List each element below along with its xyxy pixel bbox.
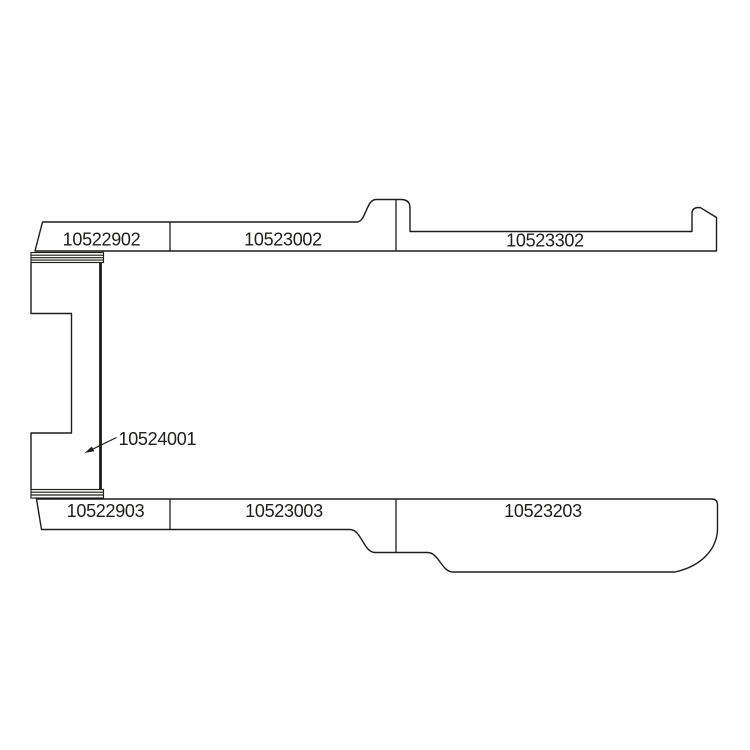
parts-diagram: 10522902 10523002 10523302 [0, 0, 750, 750]
callout-leader-line [93, 438, 117, 450]
leader-arrowhead-icon [85, 447, 95, 454]
part-number-label: 10523003 [245, 501, 323, 521]
left-pillar-part: 10524001 [31, 253, 196, 499]
part-number-label: 10523203 [504, 501, 582, 521]
pillar-bottom-sill [31, 490, 104, 499]
part-number-label: 10522902 [63, 230, 141, 250]
part-number-label: 10522903 [67, 501, 145, 521]
top-rail-assembly: 10522902 10523002 10523302 [35, 200, 717, 252]
diagram-page: 10522902 10523002 10523302 [0, 0, 750, 750]
part-number-label: 10524001 [119, 429, 197, 449]
part-number-label: 10523002 [244, 230, 322, 250]
pillar-left-outline [31, 263, 72, 490]
pillar-top-sill [31, 253, 104, 263]
bottom-rail-assembly: 10522903 10523003 10523203 [37, 499, 718, 572]
part-number-label: 10523302 [506, 231, 584, 251]
